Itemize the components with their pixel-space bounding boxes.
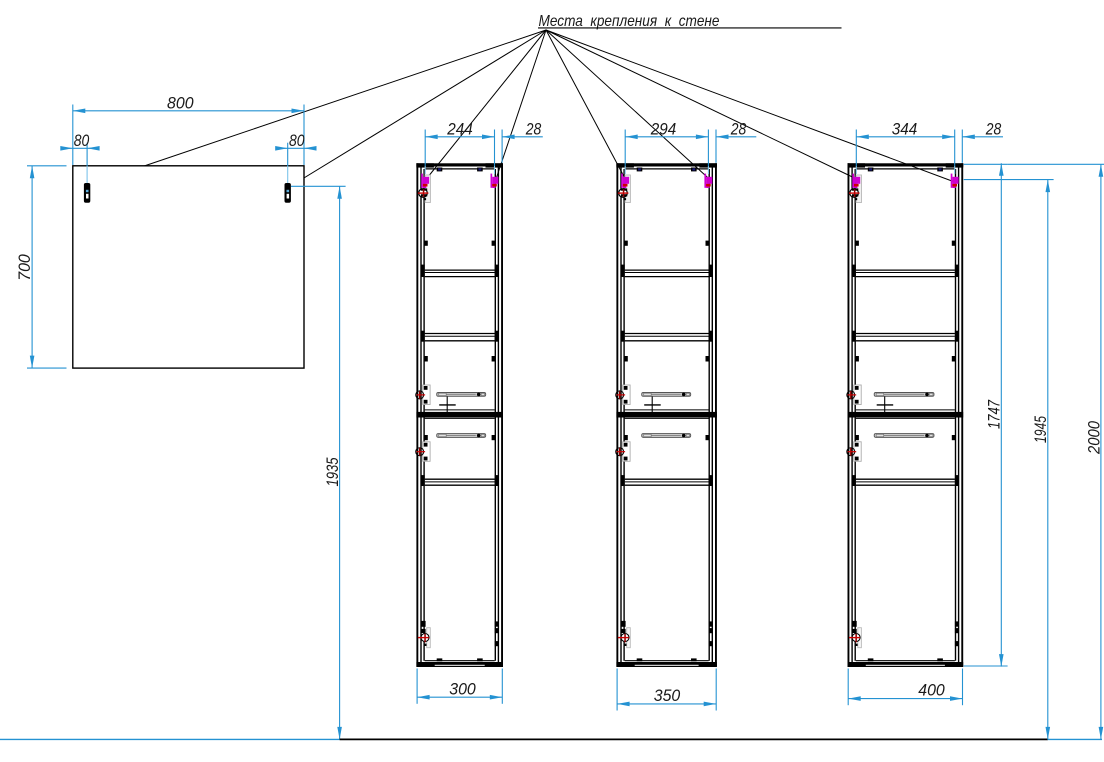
svg-text:700: 700 [15,254,34,281]
svg-text:1945: 1945 [1031,416,1050,443]
svg-text:80: 80 [289,131,305,150]
svg-text:28: 28 [985,119,1002,138]
svg-text:80: 80 [74,131,90,150]
svg-text:244: 244 [446,119,472,138]
svg-text:1747: 1747 [985,400,1004,429]
svg-text:28: 28 [525,119,542,138]
svg-text:800: 800 [167,94,194,113]
svg-text:2000: 2000 [1084,421,1103,455]
svg-text:28: 28 [730,119,747,138]
svg-text:350: 350 [654,686,681,705]
svg-text:400: 400 [918,681,945,700]
svg-text:294: 294 [650,119,676,138]
svg-text:1935: 1935 [323,457,342,486]
svg-text:344: 344 [892,119,918,138]
svg-text:300: 300 [449,679,476,698]
